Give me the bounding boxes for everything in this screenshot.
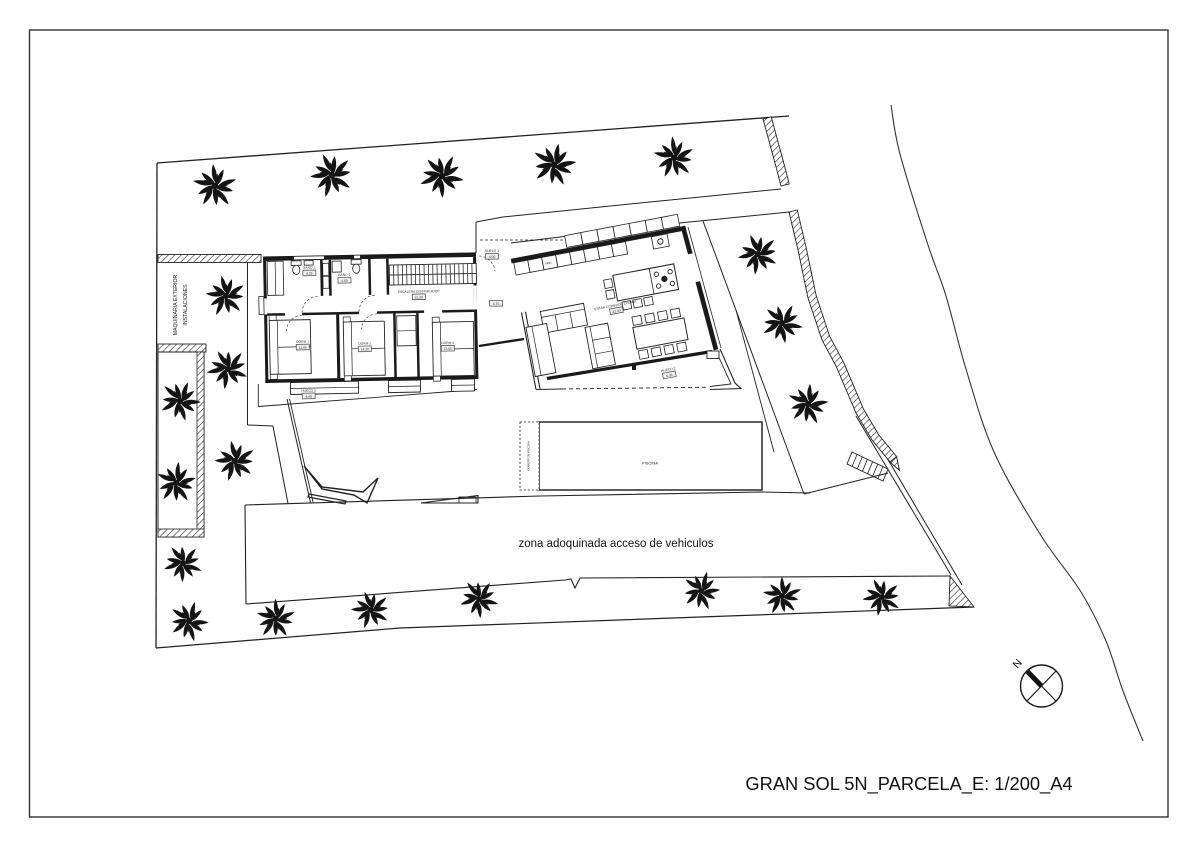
svg-text:4.70: 4.70 <box>493 302 500 306</box>
svg-text:DORM 1: DORM 1 <box>296 340 309 344</box>
svg-text:HUECO 3: HUECO 3 <box>301 389 316 393</box>
svg-text:ESCALERA DISTRIBUIDOR: ESCALERA DISTRIBUIDOR <box>398 289 441 294</box>
svg-text:4.60: 4.60 <box>341 279 348 283</box>
svg-text:BAÑO 1: BAÑO 1 <box>303 264 315 269</box>
svg-text:COBERTOR PISCINA: COBERTOR PISCINA <box>527 441 531 471</box>
svg-text:SUELO 1: SUELO 1 <box>485 249 499 253</box>
svg-text:4.35: 4.35 <box>306 271 313 275</box>
svg-text:zona adoquinada acceso de vehi: zona adoquinada acceso de vehiculos <box>518 538 713 550</box>
svg-text:MAQUINARIA EXTERIOR: MAQUINARIA EXTERIOR <box>173 274 179 335</box>
svg-text:DORM 3: DORM 3 <box>441 341 454 345</box>
svg-text:PISCINA: PISCINA <box>642 461 658 466</box>
svg-text:DORM 2: DORM 2 <box>358 341 371 345</box>
svg-text:4.00: 4.00 <box>489 255 496 259</box>
svg-text:GRAN SOL 5N_PARCELA_E: 1/200_A: GRAN SOL 5N_PARCELA_E: 1/200_A4 <box>745 773 1072 795</box>
svg-text:13.05: 13.05 <box>444 347 452 351</box>
svg-text:14.20: 14.20 <box>361 347 369 351</box>
svg-text:13.65: 13.65 <box>299 346 307 350</box>
svg-text:BAÑO 2: BAÑO 2 <box>338 272 350 277</box>
svg-text:21.20: 21.20 <box>415 295 423 299</box>
svg-text:4.40: 4.40 <box>305 394 312 398</box>
svg-text:INSTALACIONES: INSTALACIONES <box>183 284 189 326</box>
